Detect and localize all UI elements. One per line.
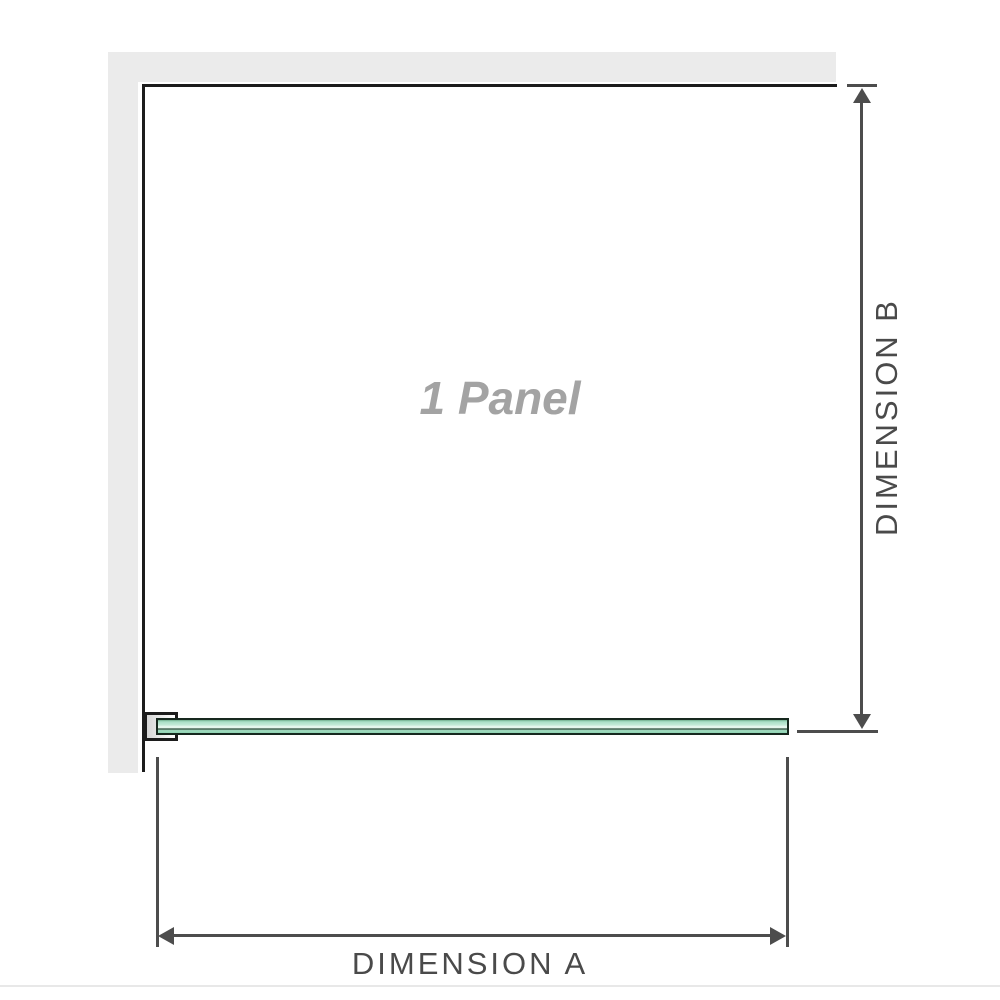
- dimension-b-line: [860, 96, 863, 720]
- wall-top: [108, 52, 836, 82]
- panel-count-label: 1 Panel: [419, 371, 580, 425]
- wall-left: [108, 52, 138, 773]
- dimension-a-right-extension-line: [786, 757, 789, 947]
- dimension-a-arrowhead-left-icon: [158, 927, 174, 945]
- dimension-a-label: DIMENSION A: [352, 946, 588, 982]
- shower-panel-diagram: 1 Panel DIMENSION B DIMENSION A: [0, 0, 1000, 1000]
- dimension-b-arrowhead-up-icon: [853, 88, 871, 103]
- dimension-b-label: DIMENSION B: [869, 298, 905, 536]
- dimension-b-bottom-tick: [797, 730, 878, 733]
- glass-panel: [156, 718, 789, 735]
- wall-inner-edge-left-line: [142, 84, 145, 772]
- dimension-b-top-tick: [847, 84, 877, 87]
- dimension-a-left-extension-line: [156, 757, 159, 947]
- page-edge-line: [0, 985, 1000, 987]
- wall-inner-edge-top-line: [143, 84, 837, 87]
- dimension-a-arrowhead-right-icon: [770, 927, 786, 945]
- dimension-a-line: [172, 934, 772, 937]
- dimension-b-arrowhead-down-icon: [853, 714, 871, 729]
